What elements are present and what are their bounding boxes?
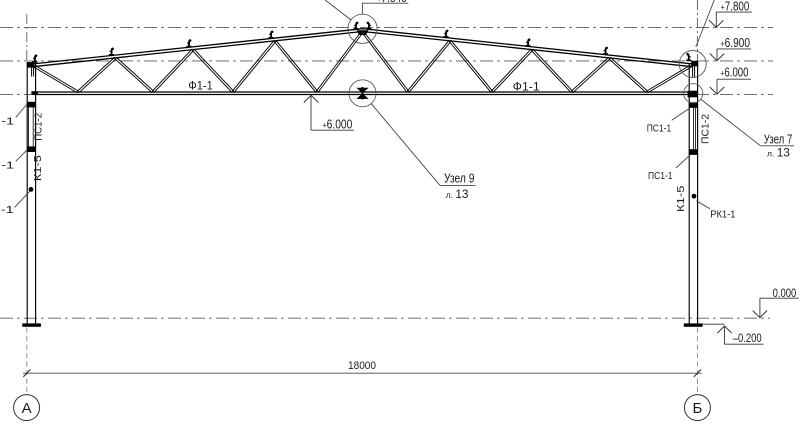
- svg-text:л. 13: л. 13: [767, 145, 790, 159]
- svg-text:Ф1-1: Ф1-1: [188, 78, 213, 92]
- svg-text:Ф1-1: Ф1-1: [513, 79, 540, 93]
- svg-text:ПС1-1: ПС1-1: [647, 122, 672, 134]
- svg-text:+7.840: +7.840: [377, 0, 407, 5]
- svg-text:РК1-1: РК1-1: [710, 209, 735, 221]
- svg-text:Узел 9: Узел 9: [444, 172, 475, 186]
- svg-text:0.000: 0.000: [773, 287, 797, 300]
- svg-text:л. 13: л. 13: [446, 187, 469, 201]
- svg-text:+6.900: +6.900: [720, 36, 750, 50]
- svg-text:А: А: [22, 400, 32, 417]
- svg-text:К1-5: К1-5: [32, 155, 44, 181]
- svg-text:18000: 18000: [348, 360, 376, 372]
- svg-text:+6.000: +6.000: [322, 118, 352, 132]
- svg-text:+7.800: +7.800: [721, 0, 750, 14]
- svg-text:К1-5: К1-5: [675, 185, 687, 212]
- svg-text:+6.000: +6.000: [720, 66, 748, 80]
- svg-text:ПС1-2: ПС1-2: [700, 114, 712, 144]
- svg-text:ПС1-2: ПС1-2: [33, 113, 45, 141]
- svg-text:-1: -1: [1, 115, 14, 127]
- svg-text:-1: -1: [1, 160, 14, 172]
- svg-text:Б: Б: [692, 400, 702, 417]
- svg-text:–0.200: –0.200: [733, 331, 762, 345]
- svg-text:-1: -1: [1, 204, 14, 216]
- svg-text:ПС1-1: ПС1-1: [648, 170, 673, 182]
